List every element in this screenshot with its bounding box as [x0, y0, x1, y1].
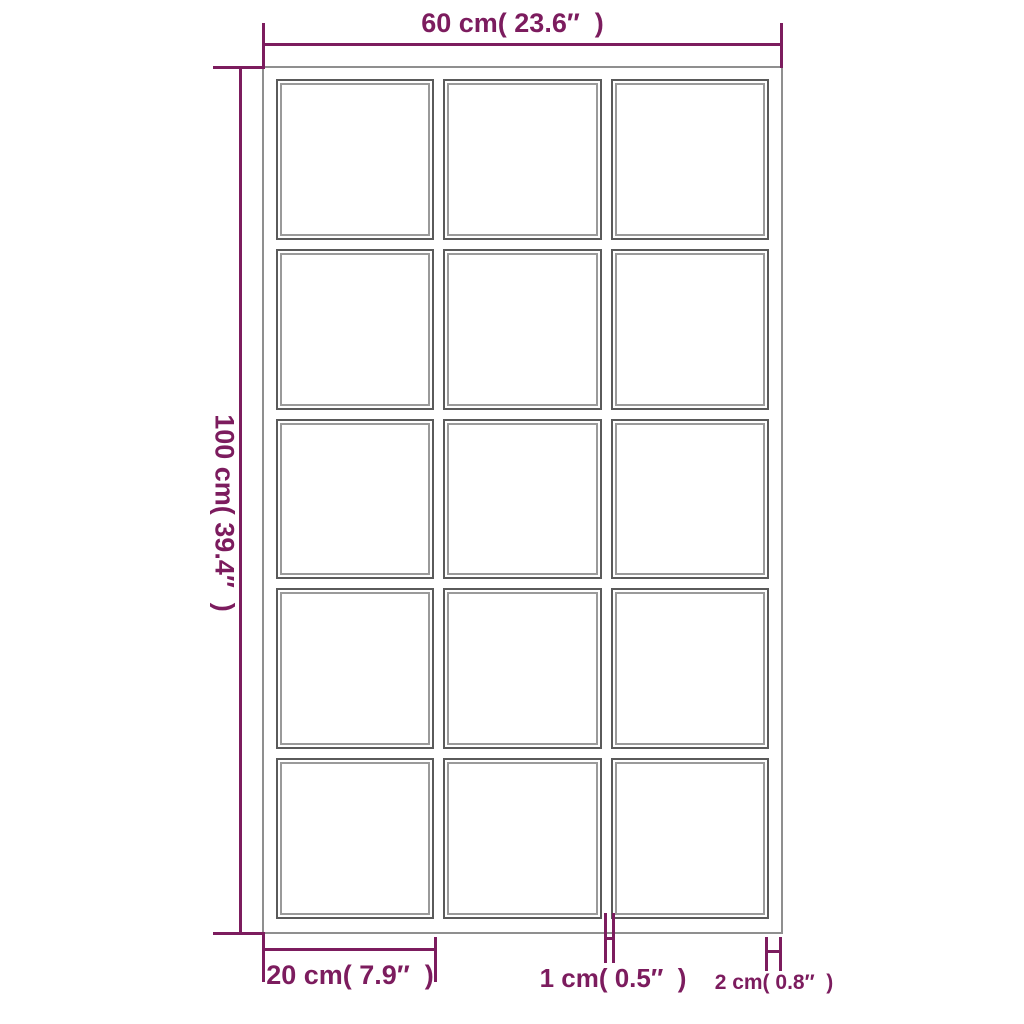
mirror-frame: [262, 66, 783, 934]
frame-width-label: 2 cm( 0.8″ ): [715, 972, 834, 993]
width-dimension-line: [262, 43, 783, 46]
pane-width-dimension-label: 20 cm( 7.9″ ): [254, 962, 446, 989]
width-dimension-label: 60 cm( 23.6″ ): [252, 10, 773, 37]
mirror-pane: [611, 79, 769, 240]
mirror-pane: [611, 249, 769, 410]
height-dimension-tick-top: [213, 66, 265, 69]
frame-width-tick-left: [765, 937, 768, 971]
mirror-pane: [611, 419, 769, 580]
mirror-pane: [443, 588, 601, 749]
height-dimension-label: 100 cm( 39.4″ ): [211, 414, 238, 612]
mirror-pane: [443, 249, 601, 410]
mullion-width-label: 1 cm( 0.5″ ): [540, 965, 687, 991]
mirror-pane: [443, 758, 601, 919]
frame-width-bar: [765, 950, 782, 953]
mirror-pane: [276, 419, 434, 580]
mirror-pane: [276, 249, 434, 410]
height-dimension-tick-bottom: [213, 932, 265, 935]
mullion-width-bar: [604, 937, 615, 940]
pane-width-dimension-line: [262, 948, 437, 951]
mirror-pane: [443, 79, 601, 240]
mirror-pane: [276, 588, 434, 749]
mirror-pane: [443, 419, 601, 580]
width-dimension-tick-right: [780, 23, 783, 68]
product-dimension-diagram: 60 cm( 23.6″ ) 100 cm( 39.4″ ) 20 cm( 7.…: [0, 0, 1024, 1024]
frame-width-tick-right: [779, 937, 782, 971]
mirror-pane: [276, 79, 434, 240]
mirror-pane: [611, 758, 769, 919]
mirror-pane: [611, 588, 769, 749]
mirror-pane: [276, 758, 434, 919]
pane-grid: [276, 79, 769, 919]
